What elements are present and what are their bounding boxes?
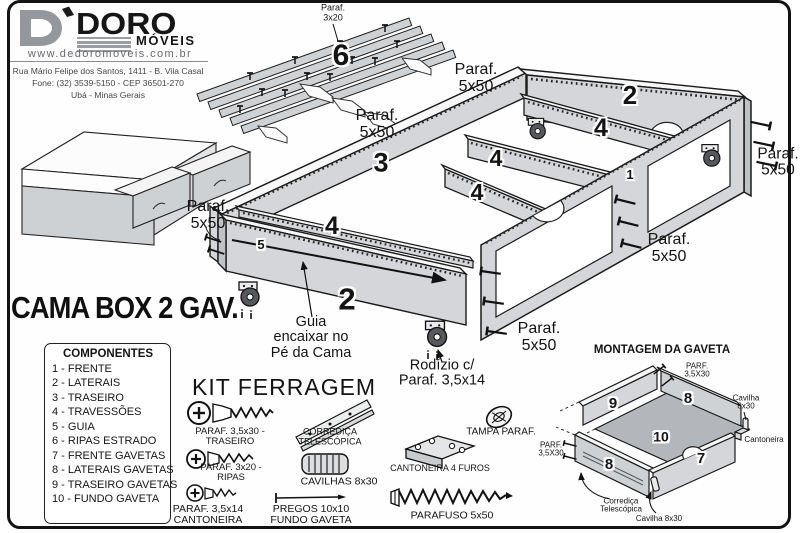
component-item-8: 8 - LATERAIS GAVETAS bbox=[52, 463, 170, 477]
montagem-label-corredica: Corrediça Telescópica bbox=[600, 498, 642, 515]
montagem-label-cavilha-bottom: Cavilha 8x30 bbox=[636, 515, 682, 523]
part-number-4-front: 4 bbox=[325, 213, 339, 240]
kit-label-cavilhas: CAVILHAS 8x30 bbox=[301, 476, 378, 487]
part-number-5: 5 bbox=[257, 238, 264, 252]
component-item-4: 4 - TRAVESSÕES bbox=[52, 405, 170, 419]
caster-top bbox=[528, 118, 545, 138]
part-number-2-guia: 2 bbox=[338, 284, 355, 317]
components-box: COMPONENTES 1 - FRENTE 2 - LATERAIS 3 - … bbox=[44, 343, 171, 524]
nail-icon bbox=[276, 493, 346, 503]
label-paraf-5x50-left: Paraf. 5x50 bbox=[187, 199, 230, 233]
kit-label-parafuso-5x50: PARAFUSO 5x50 bbox=[411, 510, 494, 521]
kit-label-pregos: PREGOS 10x10 FUNDO GAVETA bbox=[270, 504, 351, 526]
part-number-2-lateral: 2 bbox=[623, 82, 637, 110]
screw-icon-3-5x14 bbox=[187, 485, 236, 501]
address-line-2: Fone: (32) 3539-5150 - CEP 36501-270 bbox=[8, 78, 208, 88]
caster-ticks-left bbox=[241, 309, 252, 319]
brand-row: DORO MÓVEIS bbox=[8, 4, 208, 48]
montagem-label-cavilha-right: Cavilha 8x30 bbox=[733, 395, 760, 412]
label-paraf-5x50-mid: Paraf. 5x50 bbox=[356, 108, 399, 142]
label-guia-note: Guia encaixar no Pé da Cama bbox=[271, 315, 352, 361]
kit-ferragem-title: KIT FERRAGEM bbox=[192, 374, 376, 401]
label-paraf-5x50-bottom: Paraf. 5x50 bbox=[518, 321, 561, 355]
kit-label-tampa: TAMPA PARAF. bbox=[466, 428, 535, 439]
component-item-10: 10 - FUNDO GAVETA bbox=[52, 492, 170, 506]
components-title: COMPONENTES bbox=[52, 348, 164, 360]
address-line-3: Ubá - Minas Gerais bbox=[8, 90, 208, 100]
montagem-title: MONTAGEM DA GAVETA bbox=[594, 344, 730, 356]
part-number-4-low: 4 bbox=[471, 180, 484, 204]
label-paraf-5x50-right: Paraf. 5x50 bbox=[757, 147, 798, 180]
part-number-4-mid: 4 bbox=[490, 146, 503, 170]
kit-label-paraf-3-5x14: PARAF. 3,5x14 CANTONEIRA bbox=[173, 504, 243, 526]
montagem-label-cantoneira: Cantoneira bbox=[744, 436, 783, 444]
corredica-arrow bbox=[581, 473, 610, 499]
kit-label-paraf-3-5x30: PARAF. 3,5x30 - TRASEIRO bbox=[195, 427, 265, 447]
logo-block: DORO MÓVEIS www.dedoromoveis.com.br Rua … bbox=[8, 4, 208, 48]
website-underline bbox=[10, 61, 208, 62]
label-paraf-3x20: Paraf. 3x20 bbox=[321, 3, 345, 22]
montagem-label-parf-top: PARF. 3,5X30 bbox=[684, 363, 709, 380]
component-item-7: 7 - FRENTE GAVETAS bbox=[52, 449, 170, 463]
brand-subtitle: MÓVEIS bbox=[136, 33, 196, 48]
part-number-4-top: 4 bbox=[594, 115, 608, 142]
part-number-7: 7 bbox=[697, 451, 705, 467]
label-rodizio-note: Rodízio c/ Paraf. 3,5x14 bbox=[399, 359, 485, 390]
instruction-sheet: { "logo": { "brand": "DORO", "brand_sub"… bbox=[0, 0, 800, 533]
part-number-8-back: 8 bbox=[684, 391, 692, 407]
cavilha-icon bbox=[302, 454, 348, 474]
caster-front-left bbox=[239, 282, 259, 306]
kit-label-paraf-3x20: PARAF. 3x20 - RIPAS bbox=[200, 463, 262, 483]
website-url: www.dedoromoveis.com.br bbox=[12, 48, 208, 60]
part-number-8-front: 8 bbox=[605, 457, 613, 473]
component-item-9: 9 - TRASEIRO GAVETAS bbox=[52, 478, 170, 492]
component-item-2: 2 - LATERAIS bbox=[52, 376, 170, 390]
address-line-1: Rua Mário Felipe dos Santos, 1411 - B. V… bbox=[8, 66, 208, 76]
screw-icon-3-5x30 bbox=[188, 402, 273, 424]
component-item-3: 3 - TRASEIRO bbox=[52, 391, 170, 405]
part-number-9: 9 bbox=[609, 396, 617, 412]
kit-label-corredica: CORREDIÇA TELESCÓPICA bbox=[298, 427, 361, 446]
label-paraf-5x50-top: Paraf. 5x50 bbox=[455, 62, 498, 96]
caster-rodizio bbox=[426, 321, 447, 346]
montagem-label-parf-left: PARF. 3,5X30 bbox=[538, 442, 563, 459]
kit-label-cantoneira-4-furos: CANTONEIRA 4 FUROS bbox=[390, 464, 490, 474]
parafuso-5x50-icon bbox=[391, 489, 513, 506]
label-paraf-5x50-right-mid: Paraf. 5x50 bbox=[648, 232, 691, 266]
component-item-1: 1 - FRENTE bbox=[52, 362, 170, 376]
component-item-5: 5 - GUIA bbox=[52, 420, 170, 434]
product-title: CAMA BOX 2 GAV. bbox=[11, 290, 238, 326]
doro-d-logo-icon bbox=[16, 6, 82, 50]
part-number-3: 3 bbox=[373, 149, 388, 178]
component-item-6: 6 - RIPAS ESTRADO bbox=[52, 434, 170, 448]
part-number-10: 10 bbox=[653, 430, 669, 445]
part-number-1: 1 bbox=[626, 168, 633, 182]
part-number-6: 6 bbox=[333, 40, 350, 72]
